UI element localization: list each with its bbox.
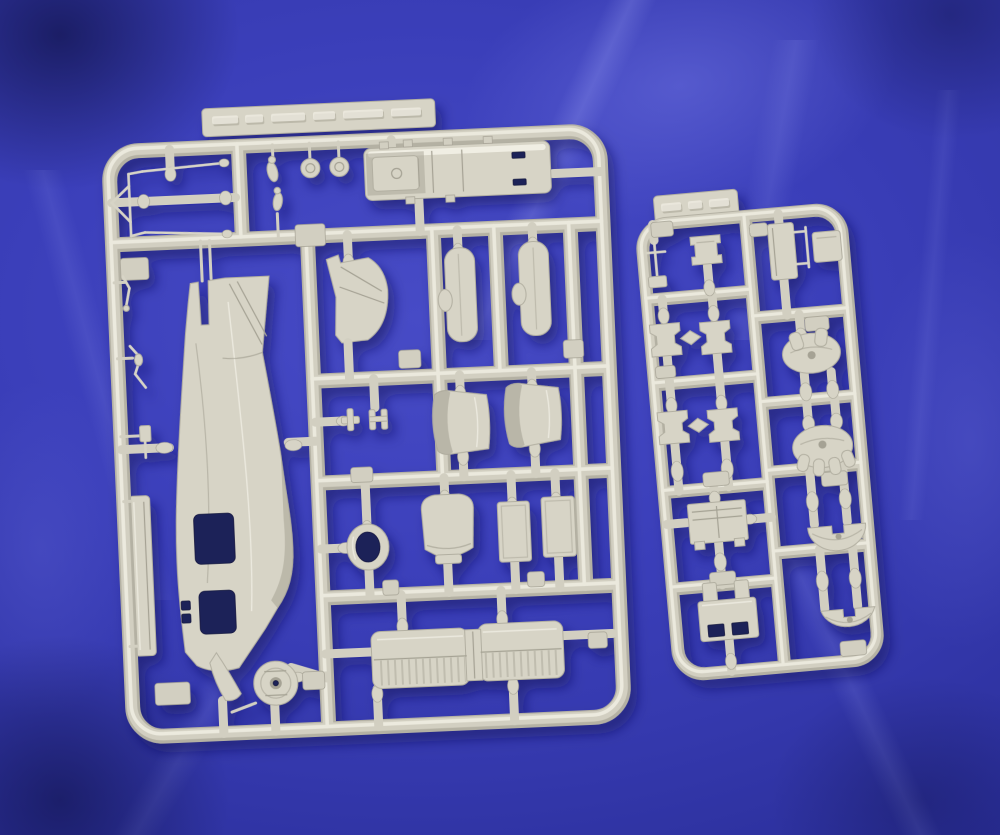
- cowl-ring: [346, 523, 390, 571]
- fuselage-half: [165, 276, 300, 703]
- hatch-panel: [497, 501, 532, 562]
- bulkhead-panel: [421, 493, 476, 564]
- engine-cowling-half: [503, 381, 563, 447]
- clamp-pair: [657, 406, 740, 447]
- hatch-panel: [541, 496, 577, 557]
- stabilizer-half: [326, 253, 391, 380]
- engine-cowling-half: [431, 389, 491, 455]
- large-sprue: [105, 92, 624, 738]
- wheel-disc: [300, 158, 320, 178]
- small-sprue: [637, 180, 879, 676]
- wing-center-section: [371, 621, 565, 689]
- nacelle-box-and-bracket: [767, 221, 810, 280]
- control-linkages: [341, 407, 388, 431]
- photo-stage: [0, 0, 1000, 835]
- sprues-photo: [0, 0, 1000, 835]
- molded-text-tag-top: [202, 99, 436, 137]
- mount-plate: [812, 230, 843, 262]
- clamp-pair: [649, 318, 732, 359]
- notched-engine-mount: [690, 235, 722, 266]
- cowl-flap-half: [821, 607, 876, 629]
- elevator-half: [510, 241, 552, 337]
- wheel-disc: [329, 157, 349, 177]
- crew-figure-parts: [265, 156, 284, 212]
